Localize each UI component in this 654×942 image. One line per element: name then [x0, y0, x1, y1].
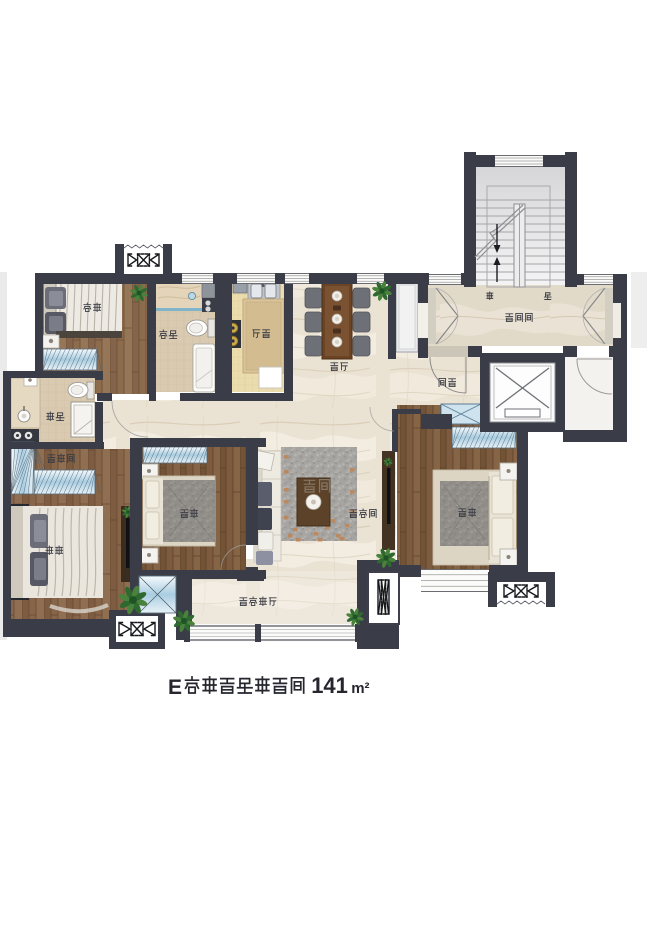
svg-text:E: E: [168, 676, 182, 699]
svg-text:m²: m²: [351, 680, 369, 697]
svg-text:141: 141: [311, 673, 348, 698]
